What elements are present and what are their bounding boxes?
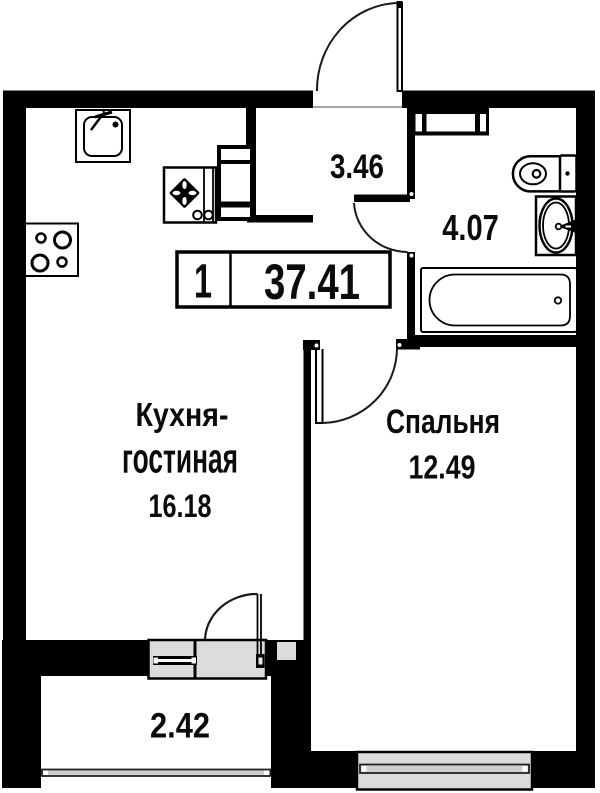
svg-text:гостиная: гостиная	[122, 435, 238, 482]
svg-text:1: 1	[194, 256, 212, 309]
svg-text:16.18: 16.18	[149, 488, 212, 524]
svg-text:12.49: 12.49	[409, 449, 476, 486]
svg-text:2.42: 2.42	[150, 706, 210, 746]
svg-text:Спальня: Спальня	[386, 403, 500, 441]
svg-text:4.07: 4.07	[442, 207, 499, 248]
svg-text:3.46: 3.46	[330, 148, 384, 186]
svg-text:Кухня-: Кухня-	[136, 396, 229, 433]
svg-text:37.41: 37.41	[264, 254, 360, 310]
